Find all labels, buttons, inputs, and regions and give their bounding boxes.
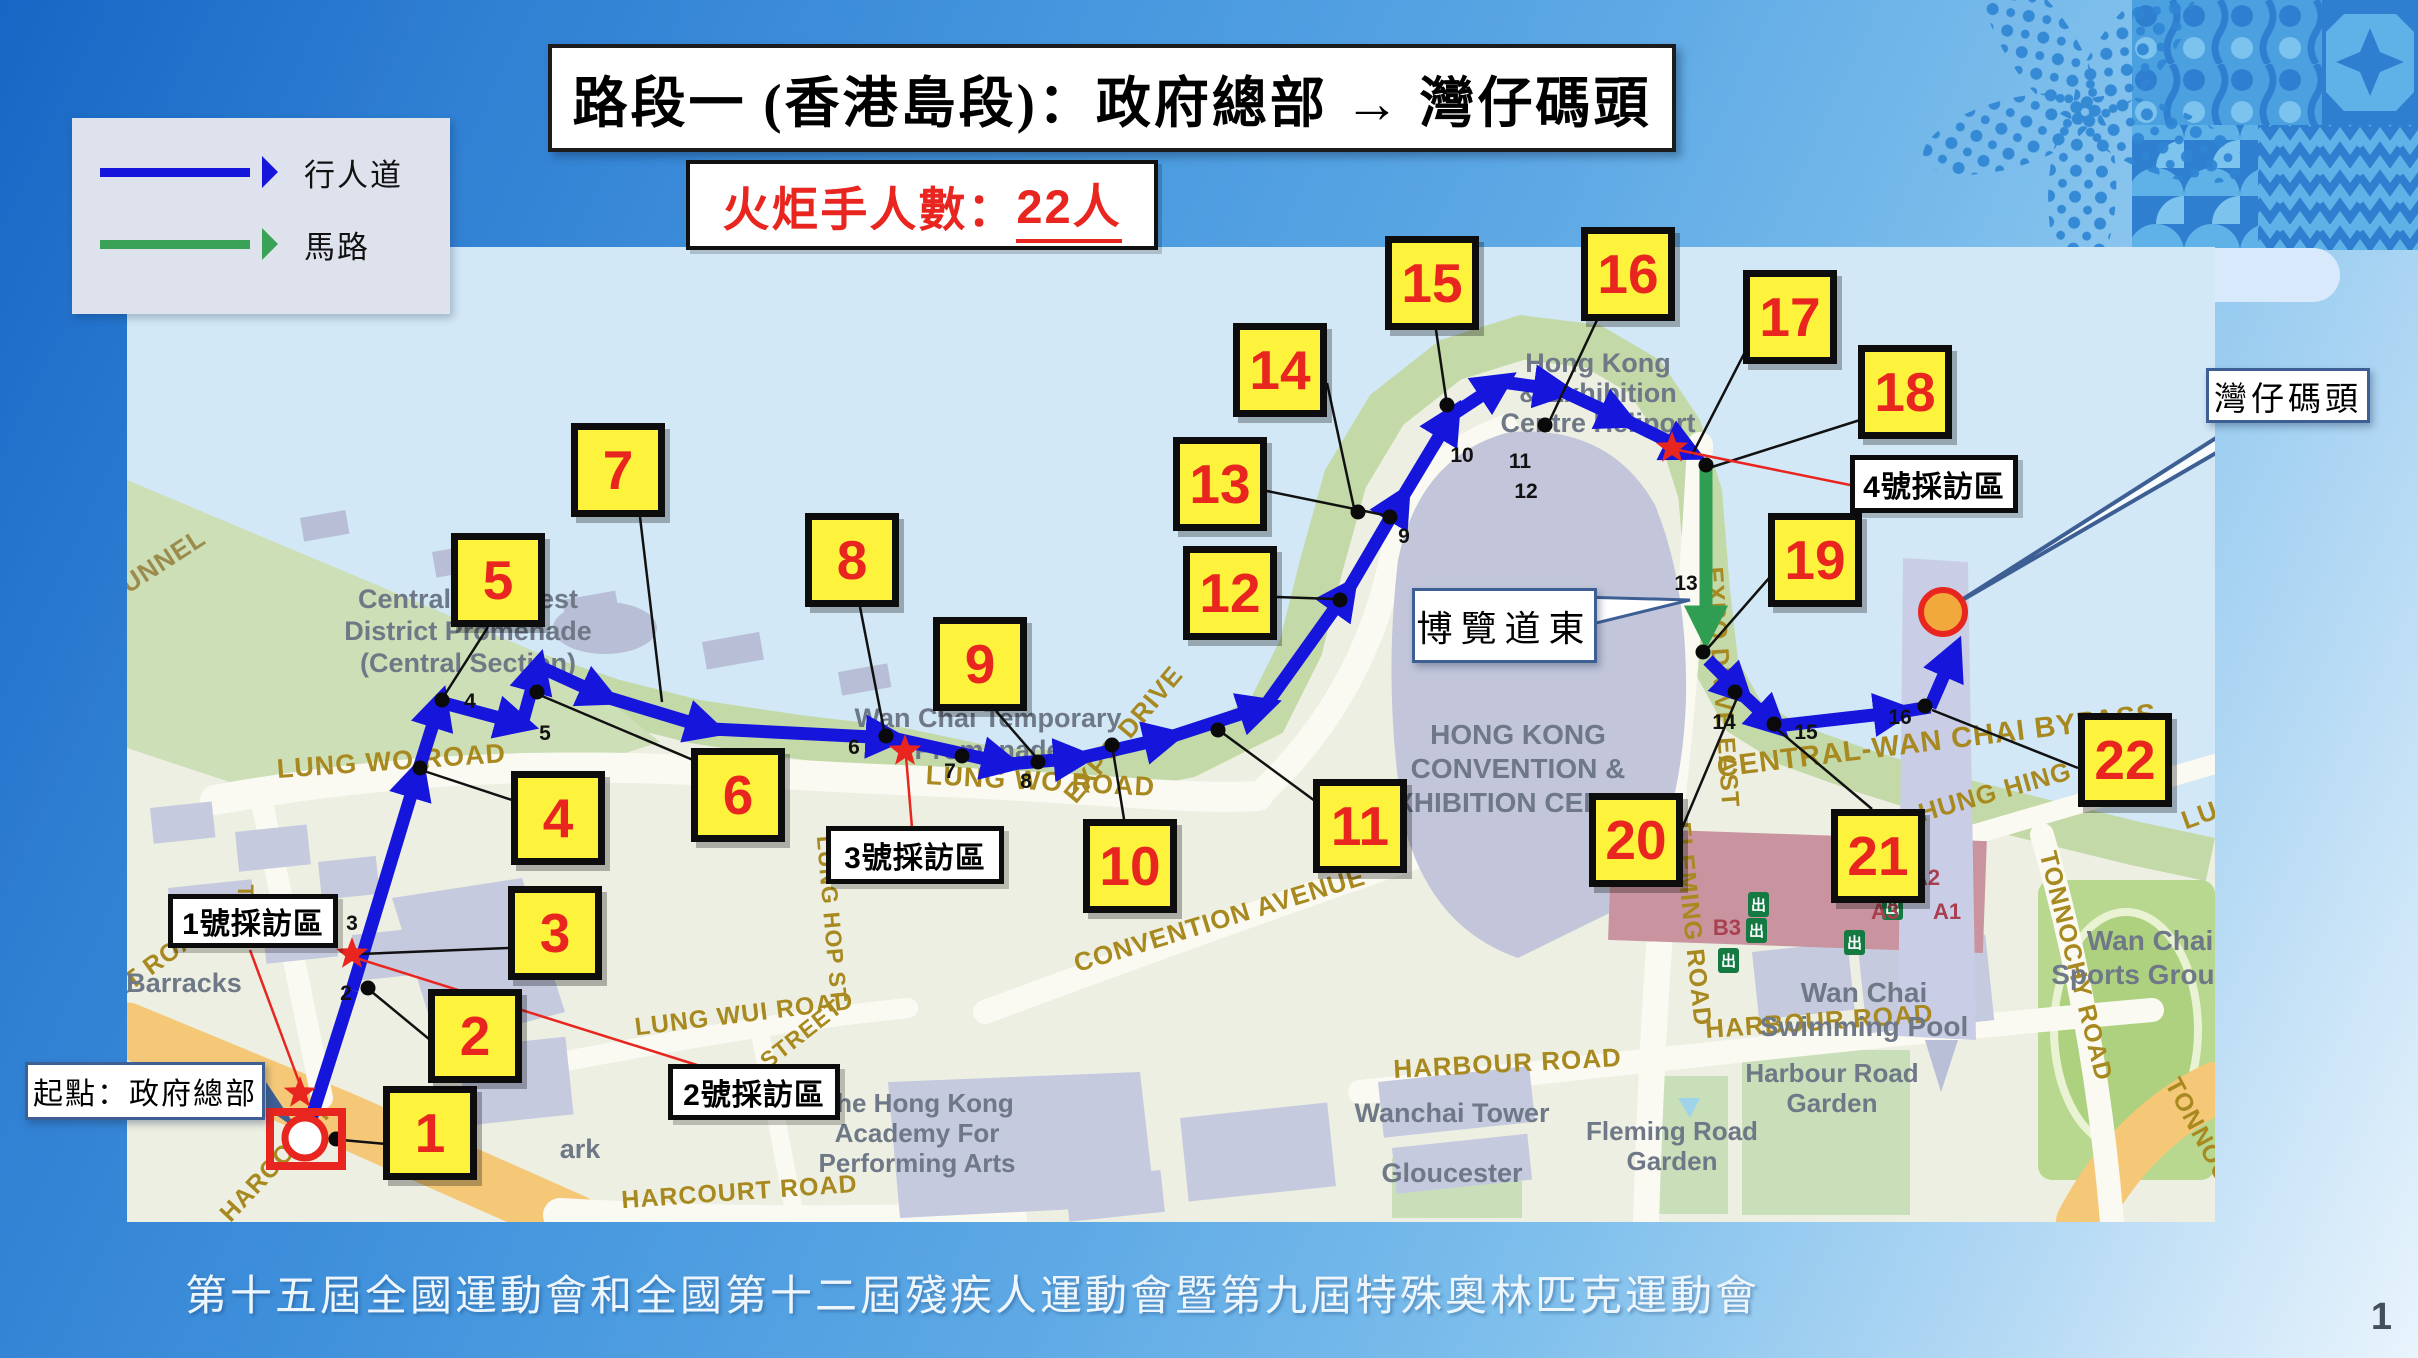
- route-dot: [413, 761, 428, 776]
- section-marker-17: 17: [1743, 270, 1837, 364]
- waypoint-number: 2: [340, 982, 352, 1005]
- slide-title-text: 路段一 (香港島段)：政府總部 → 灣仔碼頭: [573, 58, 1652, 138]
- route-dot: [1918, 699, 1933, 714]
- waypoint-number: 3: [346, 912, 358, 935]
- torchbearer-count-suffix: 人: [1073, 182, 1122, 234]
- section-marker-21: 21: [1831, 809, 1925, 903]
- section-marker-6: 6: [691, 748, 785, 842]
- waypoint-number: 11: [1509, 450, 1532, 473]
- waypoint-number: 9: [1398, 525, 1410, 548]
- section-marker-5: 5: [451, 533, 545, 627]
- wan-chai-pier-label: 灣仔碼頭: [2214, 372, 2362, 420]
- route-dot: [1440, 398, 1455, 413]
- expo-drive-east-callout: 博覽道東: [1412, 588, 1597, 663]
- torchbearer-count: 火炬手人數：22人: [686, 160, 1158, 250]
- section-marker-9: 9: [933, 617, 1027, 711]
- place-label-wanchai-tower: Wanchai Tower: [1354, 1098, 1550, 1128]
- waypoint-number: 6: [848, 736, 860, 759]
- place-label-swimming-pool: Swimming Pool: [1760, 1011, 1968, 1042]
- route-dot: [530, 685, 545, 700]
- place-label-apa: The Hong Kong: [820, 1088, 1014, 1118]
- place-label-tamar-park: ark: [560, 1134, 602, 1164]
- interview-zone-3: 3號採訪區: [826, 826, 1004, 884]
- legend-label: 行人道: [304, 150, 403, 195]
- waypoint-number: 10: [1450, 444, 1473, 467]
- route-dot: [1211, 723, 1226, 738]
- place-label-heliport: Hong Kong: [1525, 348, 1670, 378]
- section-marker-13: 13: [1173, 437, 1267, 531]
- place-label-harbour-garden: Harbour Road: [1745, 1058, 1918, 1088]
- exit-label: B3: [1713, 915, 1741, 940]
- place-label-fleming-garden: Fleming Road: [1586, 1116, 1758, 1146]
- slide-title: 路段一 (香港島段)：政府總部 → 灣仔碼頭: [548, 44, 1676, 152]
- pedestrian-route-segment: [1502, 382, 1560, 390]
- torchbearer-count-number: 22: [1016, 180, 1072, 233]
- map-legend: 行人道 馬路: [72, 118, 450, 314]
- route-dot: [435, 693, 450, 708]
- pedestrian-route-segment: [712, 729, 892, 738]
- slide-route-map: 出出出出出B3A3A2A1SS TUNNELHARCOURT ROADHARCO…: [0, 0, 2418, 1358]
- waypoint-number: 12: [1514, 480, 1537, 503]
- svg-text:出: 出: [1721, 952, 1736, 970]
- legend-item-road: 馬路: [100, 208, 450, 280]
- waypoint-number: 5: [539, 722, 551, 745]
- section-marker-2: 2: [428, 989, 522, 1083]
- route-dot: [1383, 510, 1398, 525]
- section-marker-16: 16: [1581, 227, 1675, 321]
- route-dot: [955, 749, 970, 764]
- place-label-hkcec: CONVENTION &: [1411, 753, 1626, 784]
- route-dot: [1767, 717, 1782, 732]
- waypoint-number: 13: [1674, 572, 1697, 595]
- start-point-label: 起點：政府總部: [33, 1069, 257, 1113]
- interview-zone-2: 2號採訪區: [668, 1064, 840, 1120]
- section-marker-7: 7: [571, 423, 665, 517]
- svg-text:出: 出: [1751, 896, 1766, 914]
- exit-label: A1: [1933, 899, 1961, 924]
- route-dot: [879, 729, 894, 744]
- legend-label: 馬路: [304, 222, 370, 267]
- waypoint-number: 7: [944, 760, 956, 783]
- section-marker-18: 18: [1858, 345, 1952, 439]
- torchbearer-count-prefix: 火炬手人數：: [722, 171, 1016, 240]
- section-marker-11: 11: [1313, 779, 1407, 873]
- waypoint-number: 14: [1712, 711, 1736, 734]
- pedestrian-arrow-icon: [100, 168, 250, 177]
- waypoint-number: 15: [1794, 721, 1818, 744]
- place-label-apa: Academy For: [835, 1118, 1000, 1148]
- section-marker-8: 8: [805, 513, 899, 607]
- place-label-sports-ground: Sports Ground: [2051, 959, 2249, 990]
- place-label-barracks: Barracks: [126, 968, 242, 998]
- section-marker-4: 4: [511, 771, 605, 865]
- section-marker-14: 14: [1233, 323, 1327, 417]
- place-label-swimming-pool: Wan Chai: [1801, 977, 1928, 1008]
- place-label-harbour-garden: Garden: [1786, 1088, 1877, 1118]
- route-dot: [1105, 738, 1120, 753]
- interview-zone-4: 4號採訪區: [1850, 455, 2018, 513]
- legend-item-pedestrian: 行人道: [100, 136, 450, 208]
- section-marker-10: 10: [1083, 819, 1177, 913]
- route-dot: [1031, 755, 1046, 770]
- place-label-sports-ground: Wan Chai: [2087, 925, 2214, 956]
- place-label-fleming-garden: Garden: [1626, 1146, 1717, 1176]
- section-marker-3: 3: [508, 886, 602, 980]
- route-dot: [1351, 505, 1366, 520]
- svg-text:出: 出: [1847, 934, 1862, 952]
- route-dot: [1696, 645, 1711, 660]
- place-label-apa: Performing Arts: [819, 1148, 1016, 1178]
- route-dot: [1728, 685, 1743, 700]
- wan-chai-pier-callout: 灣仔碼頭: [2206, 368, 2370, 423]
- route-dot: [1333, 593, 1348, 608]
- start-point-callout: 起點：政府總部: [25, 1062, 265, 1120]
- section-marker-12: 12: [1183, 546, 1277, 640]
- section-marker-22: 22: [2078, 713, 2172, 807]
- section-marker-1: 1: [383, 1086, 477, 1180]
- route-dot: [1699, 458, 1714, 473]
- event-title: 第十五屆全國運動會和全國第十二屆殘疾人運動會暨第九屆特殊奧林匹克運動會: [185, 1262, 1760, 1323]
- waypoint-number: 4: [464, 690, 476, 713]
- place-label-gloucester: Gloucester: [1381, 1158, 1523, 1188]
- interview-zone-1: 1號採訪區: [168, 894, 338, 948]
- page-number: 1: [2371, 1296, 2392, 1339]
- road-arrow-icon: [100, 240, 250, 249]
- end-point-icon: [1921, 590, 1965, 634]
- section-marker-15: 15: [1385, 236, 1479, 330]
- waypoint-number: 8: [1020, 770, 1032, 793]
- waypoint-number: 16: [1888, 706, 1911, 729]
- place-label-hkcec: HONG KONG: [1430, 719, 1606, 750]
- section-marker-19: 19: [1768, 513, 1862, 607]
- map-base: 出出出出出B3A3A2A1SS TUNNELHARCOURT ROADHARCO…: [9, 247, 2416, 1227]
- expo-drive-east-label: 博覽道東: [1416, 600, 1592, 652]
- route-dot: [1538, 418, 1553, 433]
- section-marker-20: 20: [1589, 793, 1683, 887]
- svg-text:出: 出: [1749, 922, 1764, 940]
- route-dot: [361, 981, 376, 996]
